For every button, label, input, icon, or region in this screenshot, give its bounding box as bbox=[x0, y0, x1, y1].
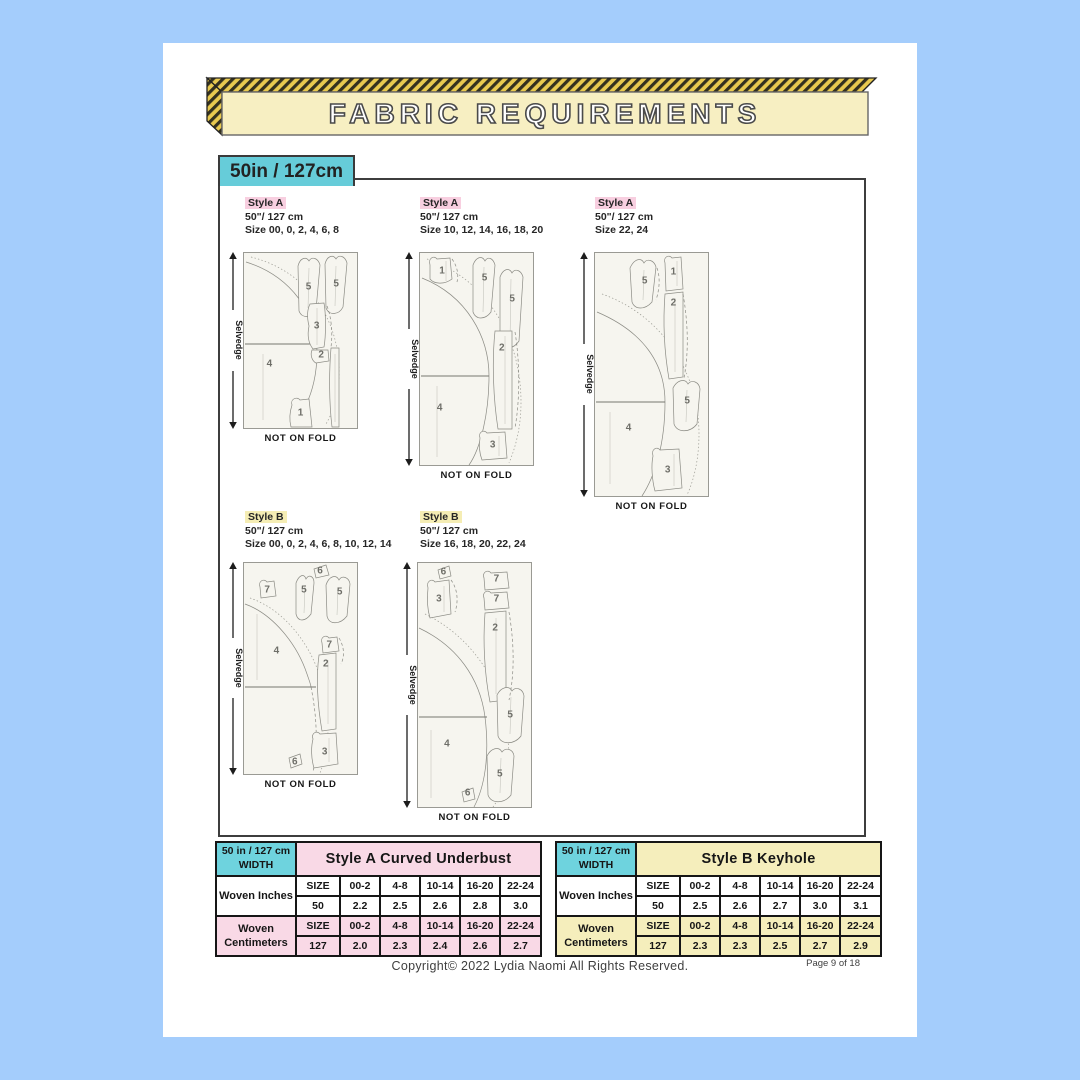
value-cell: 2.6 bbox=[460, 936, 500, 956]
row-group-cell: Woven Centimeters bbox=[556, 916, 636, 956]
pattern-piece-number: 4 bbox=[626, 423, 632, 434]
piece-numbers: 155243 bbox=[419, 252, 534, 466]
layout-diagram-b2: Style B 50"/ 127 cm Size 16, 18, 20, 22,… bbox=[401, 510, 551, 830]
selvedge-arrow: Selvedge bbox=[227, 252, 239, 429]
size-header-cell: 16-20 bbox=[460, 876, 500, 896]
pattern-piece-number: 2 bbox=[671, 298, 677, 309]
size-header-cell: SIZE bbox=[296, 916, 340, 936]
pattern-piece-number: 3 bbox=[322, 746, 328, 757]
value-cell: 127 bbox=[296, 936, 340, 956]
value-cell: 2.3 bbox=[680, 936, 720, 956]
row-group-cell: Woven Inches bbox=[556, 876, 636, 916]
pattern-piece-number: 6 bbox=[465, 788, 471, 799]
sizes-label: Size 22, 24 bbox=[595, 224, 653, 238]
pattern-piece-number: 5 bbox=[301, 584, 307, 595]
size-header-cell: 00-2 bbox=[340, 876, 380, 896]
pattern-piece-number: 7 bbox=[494, 593, 500, 604]
pattern-piece-number: 2 bbox=[492, 623, 498, 634]
pattern-piece-number: 5 bbox=[306, 282, 312, 293]
fabric-rect: 553241 bbox=[243, 252, 358, 429]
value-cell: 2.9 bbox=[840, 936, 881, 956]
size-header-cell: 00-2 bbox=[680, 916, 720, 936]
value-cell: 2.5 bbox=[380, 896, 420, 916]
size-header-cell: 22-24 bbox=[500, 876, 541, 896]
size-header-cell: 4-8 bbox=[380, 876, 420, 896]
size-header-cell: 4-8 bbox=[720, 876, 760, 896]
pattern-piece-number: 4 bbox=[274, 646, 280, 657]
fabric-rect: 512543 bbox=[594, 252, 709, 497]
pattern-piece-number: 5 bbox=[684, 396, 690, 407]
not-on-fold-label: NOT ON FOLD bbox=[594, 501, 709, 512]
sizes-label: Size 10, 12, 14, 16, 18, 20 bbox=[420, 224, 543, 238]
size-header-cell: 4-8 bbox=[380, 916, 420, 936]
pattern-piece-number: 5 bbox=[642, 276, 648, 287]
diagram-label: Style A 50"/ 127 cm Size 22, 24 bbox=[595, 197, 653, 238]
value-cell: 50 bbox=[636, 896, 680, 916]
value-cell: 2.5 bbox=[680, 896, 720, 916]
fabric-rect: 637724556 bbox=[417, 562, 532, 808]
value-cell: 2.7 bbox=[500, 936, 541, 956]
layout-diagram-a3: Style A 50"/ 127 cm Size 22, 24 Selvedge bbox=[578, 196, 728, 516]
not-on-fold-label: NOT ON FOLD bbox=[243, 433, 358, 444]
width-label: 50"/ 127 cm bbox=[595, 211, 653, 225]
diagram-label: Style A 50"/ 127 cm Size 10, 12, 14, 16,… bbox=[420, 197, 543, 238]
selvedge-arrow: Selvedge bbox=[403, 252, 415, 466]
pattern-piece-number: 6 bbox=[317, 565, 323, 576]
piece-numbers: 512543 bbox=[594, 252, 709, 497]
width-label: 50"/ 127 cm bbox=[245, 211, 339, 225]
selvedge-arrow: Selvedge bbox=[578, 252, 590, 497]
size-header-cell: 16-20 bbox=[460, 916, 500, 936]
size-header-cell: 00-2 bbox=[680, 876, 720, 896]
pattern-piece-number: 1 bbox=[671, 266, 677, 277]
size-header-cell: 22-24 bbox=[840, 876, 881, 896]
value-cell: 2.7 bbox=[760, 896, 800, 916]
banner-top-face bbox=[207, 78, 876, 92]
diagram-label: Style B 50"/ 127 cm Size 00, 0, 2, 4, 6,… bbox=[245, 511, 392, 552]
style-label: Style B bbox=[420, 511, 462, 523]
pattern-piece-number: 1 bbox=[439, 266, 445, 277]
pattern-piece-number: 2 bbox=[318, 349, 324, 360]
pattern-piece-number: 3 bbox=[490, 439, 496, 450]
pattern-piece-number: 5 bbox=[337, 586, 343, 597]
value-cell: 2.8 bbox=[460, 896, 500, 916]
pattern-piece-number: 4 bbox=[437, 403, 443, 414]
copyright-text: Copyright© 2022 Lydia Naomi All Rights R… bbox=[300, 959, 780, 973]
style-label: Style A bbox=[420, 197, 461, 209]
pattern-piece-number: 4 bbox=[267, 358, 273, 369]
fabric-rect: 765547236 bbox=[243, 562, 358, 775]
style-label: Style A bbox=[245, 197, 286, 209]
pattern-piece-number: 6 bbox=[292, 757, 298, 768]
piece-numbers: 765547236 bbox=[243, 562, 358, 775]
style-b-requirements-table: 50 in / 127 cmWIDTHStyle B KeyholeWoven … bbox=[555, 841, 882, 957]
diagram-label: Style B 50"/ 127 cm Size 16, 18, 20, 22,… bbox=[420, 511, 526, 552]
diagram-label: Style A 50"/ 127 cm Size 00, 0, 2, 4, 6,… bbox=[245, 197, 339, 238]
value-cell: 2.3 bbox=[720, 936, 760, 956]
pattern-piece-number: 3 bbox=[665, 465, 671, 476]
page-number: Page 9 of 18 bbox=[760, 958, 860, 969]
sizes-label: Size 00, 0, 2, 4, 6, 8, 10, 12, 14 bbox=[245, 538, 392, 552]
pattern-piece-number: 3 bbox=[436, 593, 442, 604]
style-label: Style B bbox=[245, 511, 287, 523]
sizes-label: Size 16, 18, 20, 22, 24 bbox=[420, 538, 526, 552]
piece-numbers: 637724556 bbox=[417, 562, 532, 808]
value-cell: 3.0 bbox=[500, 896, 541, 916]
pattern-piece-number: 4 bbox=[444, 739, 450, 750]
fabric-width-badge: 50in / 127cm bbox=[218, 155, 355, 186]
width-label: 50"/ 127 cm bbox=[420, 211, 543, 225]
style-a-requirements-table: 50 in / 127 cmWIDTHStyle A Curved Underb… bbox=[215, 841, 542, 957]
size-header-cell: 22-24 bbox=[500, 916, 541, 936]
piece-numbers: 553241 bbox=[243, 252, 358, 429]
sizes-label: Size 00, 0, 2, 4, 6, 8 bbox=[245, 224, 339, 238]
size-header-cell: 4-8 bbox=[720, 916, 760, 936]
size-header-cell: 10-14 bbox=[760, 876, 800, 896]
size-header-cell: 10-14 bbox=[420, 876, 460, 896]
pattern-piece-number: 2 bbox=[499, 343, 505, 354]
pattern-piece-number: 2 bbox=[323, 659, 329, 670]
pattern-piece-number: 5 bbox=[482, 272, 488, 283]
width-label: 50"/ 127 cm bbox=[245, 525, 392, 539]
row-group-cell: Woven Centimeters bbox=[216, 916, 296, 956]
pattern-piece-number: 7 bbox=[494, 574, 500, 585]
table-title-cell: Style B Keyhole bbox=[636, 842, 881, 876]
not-on-fold-label: NOT ON FOLD bbox=[419, 470, 534, 481]
value-cell: 2.6 bbox=[420, 896, 460, 916]
pattern-piece-number: 7 bbox=[264, 584, 270, 595]
width-label: 50"/ 127 cm bbox=[420, 525, 526, 539]
fabric-rect: 155243 bbox=[419, 252, 534, 466]
layout-diagram-a1: Style A 50"/ 127 cm Size 00, 0, 2, 4, 6,… bbox=[227, 196, 377, 446]
page-title: FABRIC REQUIREMENTS bbox=[222, 92, 868, 135]
layout-diagram-a2: Style A 50"/ 127 cm Size 10, 12, 14, 16,… bbox=[403, 196, 553, 486]
value-cell: 2.0 bbox=[340, 936, 380, 956]
row-group-cell: Woven Inches bbox=[216, 876, 296, 916]
size-header-cell: SIZE bbox=[636, 876, 680, 896]
pattern-piece-number: 7 bbox=[326, 640, 332, 651]
value-cell: 3.0 bbox=[800, 896, 840, 916]
pattern-piece-number: 5 bbox=[507, 709, 513, 720]
selvedge-arrow: Selvedge bbox=[227, 562, 239, 775]
not-on-fold-label: NOT ON FOLD bbox=[417, 812, 532, 823]
size-header-cell: 16-20 bbox=[800, 876, 840, 896]
size-header-cell: 22-24 bbox=[840, 916, 881, 936]
size-header-cell: 16-20 bbox=[800, 916, 840, 936]
size-header-cell: SIZE bbox=[296, 876, 340, 896]
size-header-cell: 00-2 bbox=[340, 916, 380, 936]
selvedge-arrow: Selvedge bbox=[401, 562, 413, 808]
fabric-table: 50 in / 127 cmWIDTHStyle B KeyholeWoven … bbox=[555, 841, 882, 957]
width-header-cell: 50 in / 127 cmWIDTH bbox=[556, 842, 636, 876]
value-cell: 2.3 bbox=[380, 936, 420, 956]
pattern-piece-number: 1 bbox=[298, 408, 304, 419]
pattern-piece-number: 5 bbox=[497, 768, 503, 779]
value-cell: 2.6 bbox=[720, 896, 760, 916]
width-header-cell: 50 in / 127 cmWIDTH bbox=[216, 842, 296, 876]
layout-diagram-b1: Style B 50"/ 127 cm Size 00, 0, 2, 4, 6,… bbox=[227, 510, 377, 800]
pattern-piece-number: 3 bbox=[314, 321, 320, 332]
pattern-piece-number: 5 bbox=[509, 294, 515, 305]
style-label: Style A bbox=[595, 197, 636, 209]
value-cell: 50 bbox=[296, 896, 340, 916]
size-header-cell: 10-14 bbox=[760, 916, 800, 936]
value-cell: 2.7 bbox=[800, 936, 840, 956]
value-cell: 2.4 bbox=[420, 936, 460, 956]
table-title-cell: Style A Curved Underbust bbox=[296, 842, 541, 876]
size-header-cell: SIZE bbox=[636, 916, 680, 936]
pattern-piece-number: 5 bbox=[333, 278, 339, 289]
fabric-table: 50 in / 127 cmWIDTHStyle A Curved Underb… bbox=[215, 841, 542, 957]
not-on-fold-label: NOT ON FOLD bbox=[243, 779, 358, 790]
size-header-cell: 10-14 bbox=[420, 916, 460, 936]
value-cell: 2.5 bbox=[760, 936, 800, 956]
pattern-piece-number: 6 bbox=[441, 566, 447, 577]
value-cell: 3.1 bbox=[840, 896, 881, 916]
value-cell: 127 bbox=[636, 936, 680, 956]
value-cell: 2.2 bbox=[340, 896, 380, 916]
